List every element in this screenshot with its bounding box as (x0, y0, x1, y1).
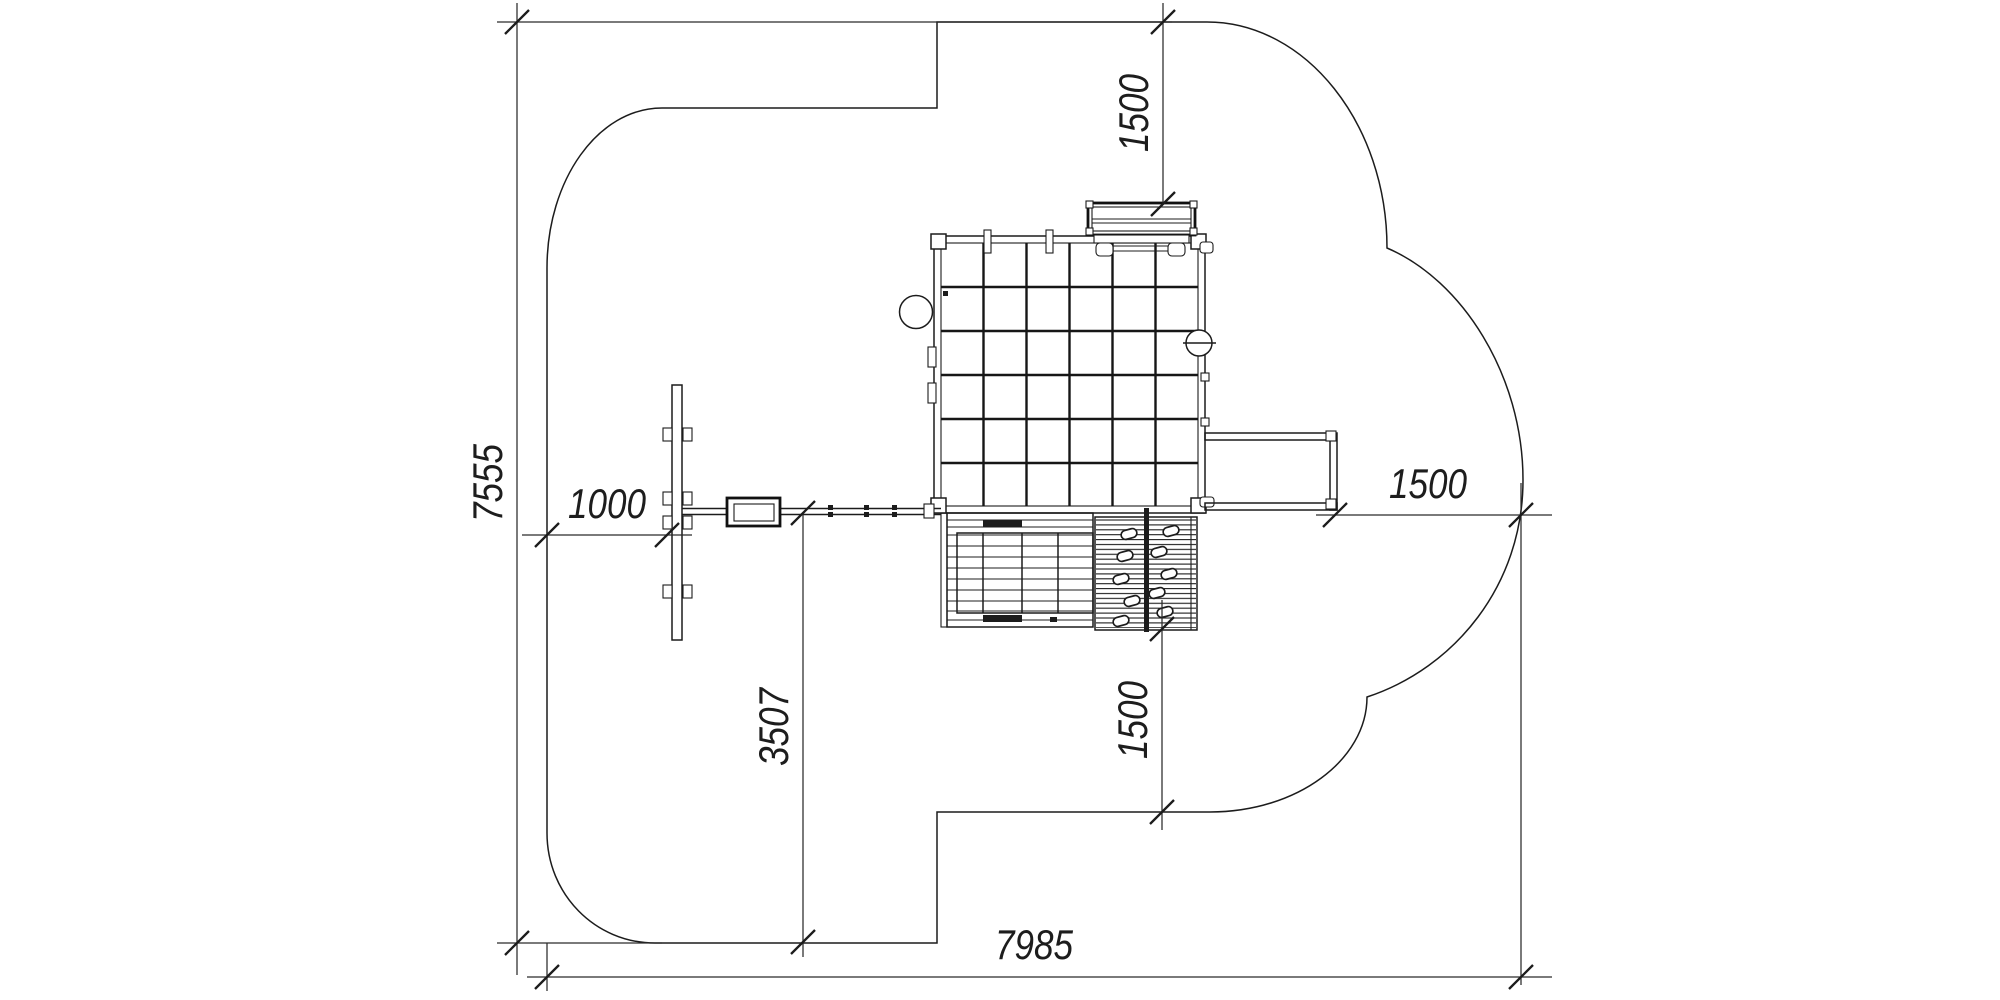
bench-post (1086, 228, 1093, 235)
plank-bracket (663, 492, 672, 505)
deck-planks (941, 513, 1093, 627)
dim-label-3507: 3507 (750, 687, 797, 766)
plank-bracket (683, 585, 692, 598)
play-tower (900, 230, 1217, 513)
plank-bracket (683, 516, 692, 529)
tower-left-tab (928, 383, 936, 403)
beam-dot (828, 505, 833, 510)
tower-top-tab (984, 230, 991, 253)
stairs-center-rail (1144, 508, 1149, 632)
railing-connector (1326, 499, 1336, 509)
bench-bracket (1096, 243, 1113, 256)
side-railing (1205, 431, 1337, 510)
dim-label-7555: 7555 (464, 443, 511, 522)
deck-outer (947, 513, 1093, 627)
tower-top-tab (1046, 230, 1053, 253)
tower-right-nub (1201, 373, 1209, 381)
plank-bracket (663, 585, 672, 598)
bench-post (1190, 228, 1197, 235)
frame-dot (943, 291, 948, 296)
bench-lower-slat (1094, 235, 1189, 243)
dim-label-top-1500: 1500 (1110, 73, 1157, 152)
climbing-stairs (1095, 508, 1197, 632)
plank-bracket (663, 516, 672, 529)
bench-post (1190, 201, 1197, 208)
dim-label-bottom-1500: 1500 (1109, 680, 1156, 759)
beam-dot (828, 512, 833, 517)
dim-label-7985: 7985 (995, 921, 1074, 968)
railing-bottom-rail (1205, 503, 1337, 510)
corner-bracket (1200, 497, 1214, 507)
railing-top-rail (1205, 433, 1330, 440)
dimension-labels: 1500 7555 1000 3507 1500 1500 7985 (464, 73, 1468, 968)
beam-connector (924, 504, 934, 518)
deck-plank-lines (947, 520, 1093, 620)
deck-dark-bar (983, 615, 1022, 622)
beam-dot (864, 505, 869, 510)
plank-bracket (663, 428, 672, 441)
porthole-left (900, 296, 933, 329)
dim-label-1000: 1000 (568, 480, 647, 527)
plan-drawing: 1500 7555 1000 3507 1500 1500 7985 (0, 0, 2000, 1000)
bench-bracket (1168, 243, 1185, 256)
tower-corner-post (931, 234, 946, 249)
plank-bracket (683, 428, 692, 441)
tower-left-tab (928, 347, 936, 367)
corner-bracket (1200, 242, 1213, 253)
dimension-ticks (505, 10, 1533, 989)
deck-dark-dot (1050, 617, 1057, 622)
plank-bracket (683, 492, 692, 505)
tower-right-nub (1201, 418, 1209, 426)
deck-left-edge (941, 513, 947, 627)
bench (1086, 201, 1197, 256)
beam-seat-outer (727, 498, 780, 526)
dim-label-right-1500: 1500 (1389, 460, 1468, 507)
deck-dark-bar (983, 520, 1022, 527)
bench-post (1086, 201, 1093, 208)
balance-plank (672, 385, 682, 640)
beam-dot (892, 512, 897, 517)
beam-dot (892, 505, 897, 510)
beam-dot (864, 512, 869, 517)
safety-zone-outline (547, 22, 1523, 943)
railing-connector (1326, 431, 1336, 441)
plan-drawing-canvas: 1500 7555 1000 3507 1500 1500 7985 (0, 0, 2000, 1000)
tower-net-grid (941, 243, 1198, 506)
